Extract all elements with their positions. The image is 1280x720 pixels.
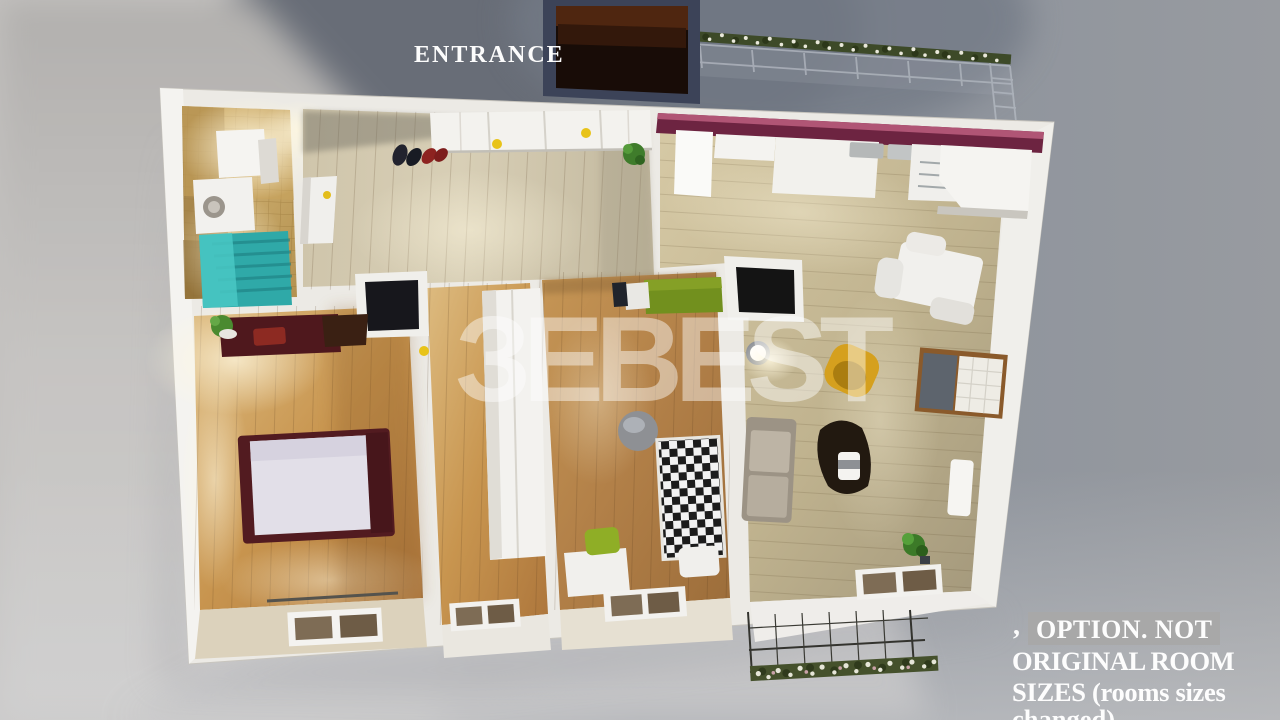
svg-text:OPTION. NOT: OPTION. NOT [1036,615,1212,644]
svg-text:ENTRANCE: ENTRANCE [414,42,565,68]
svg-text:,: , [1013,610,1020,641]
svg-text:SIZES (rooms sizes: SIZES (rooms sizes [1012,677,1226,707]
svg-text:ORIGINAL ROOM: ORIGINAL ROOM [1012,646,1235,676]
svg-text:ЗEBEST: ЗEBEST [455,291,893,427]
svg-text:changed): changed) [1012,704,1115,720]
